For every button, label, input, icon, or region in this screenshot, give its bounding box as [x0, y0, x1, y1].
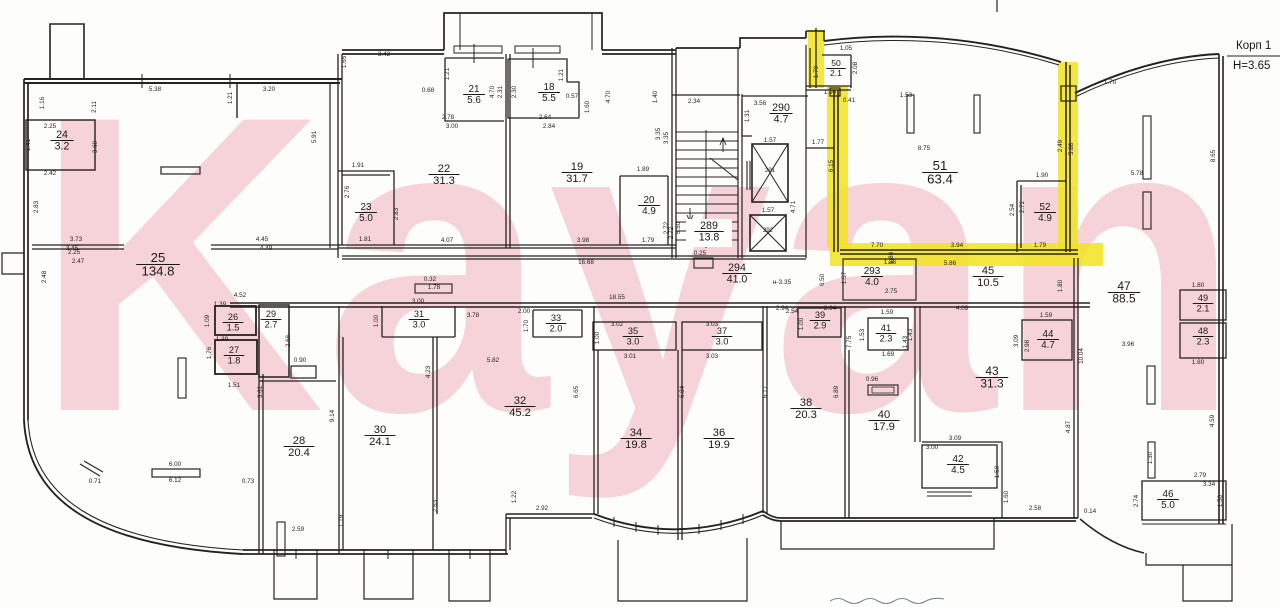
svg-text:23: 23	[361, 202, 372, 213]
svg-text:46: 46	[1163, 489, 1174, 500]
svg-text:4.07: 4.07	[441, 237, 454, 244]
svg-text:1.43: 1.43	[902, 335, 909, 348]
svg-text:2.76: 2.76	[344, 185, 351, 198]
svg-text:16.68: 16.68	[578, 259, 594, 266]
svg-text:289: 289	[700, 220, 718, 232]
svg-text:1.70: 1.70	[813, 65, 820, 78]
svg-text:0.71: 0.71	[89, 478, 102, 485]
svg-text:3.09: 3.09	[949, 435, 962, 442]
svg-text:1.51: 1.51	[228, 382, 241, 389]
svg-text:2.25: 2.25	[44, 123, 57, 130]
svg-text:2.49: 2.49	[1057, 139, 1064, 152]
svg-text:2.72: 2.72	[663, 221, 670, 234]
svg-text:88.5: 88.5	[1112, 292, 1136, 306]
svg-text:45.2: 45.2	[509, 407, 531, 419]
svg-text:41.0: 41.0	[727, 274, 748, 286]
svg-text:38: 38	[800, 397, 812, 409]
svg-text:1.77: 1.77	[812, 139, 825, 146]
svg-text:2.54: 2.54	[1009, 203, 1016, 216]
svg-text:2.58: 2.58	[1029, 505, 1042, 512]
svg-text:31.3: 31.3	[980, 377, 1004, 391]
svg-text:52: 52	[1040, 202, 1051, 213]
svg-text:1.57: 1.57	[841, 271, 848, 284]
svg-text:10.04: 10.04	[1078, 348, 1085, 364]
svg-text:н-3.35: н-3.35	[773, 279, 792, 286]
svg-text:3.09: 3.09	[1013, 334, 1020, 347]
svg-text:1.89: 1.89	[637, 166, 650, 173]
svg-text:40: 40	[878, 409, 890, 421]
svg-text:2.59: 2.59	[292, 526, 305, 533]
svg-text:30: 30	[374, 424, 386, 436]
svg-text:5.0: 5.0	[359, 213, 373, 224]
svg-text:2.75: 2.75	[885, 288, 898, 295]
svg-text:2.78: 2.78	[442, 114, 455, 121]
svg-text:5.86: 5.86	[944, 260, 957, 267]
svg-text:1.22: 1.22	[511, 490, 518, 503]
svg-text:1.60: 1.60	[584, 100, 591, 113]
svg-text:293: 293	[864, 266, 881, 277]
svg-text:3.35: 3.35	[663, 131, 670, 144]
svg-text:29: 29	[266, 309, 276, 319]
svg-text:1.79: 1.79	[642, 237, 655, 244]
svg-text:1.78: 1.78	[428, 284, 441, 291]
svg-text:2.92: 2.92	[536, 505, 549, 512]
svg-text:48: 48	[1198, 326, 1208, 336]
svg-text:33: 33	[551, 313, 561, 323]
svg-text:1.00: 1.00	[798, 317, 805, 330]
svg-text:3.60: 3.60	[92, 140, 99, 153]
svg-text:1.59: 1.59	[1040, 312, 1053, 319]
svg-text:3.78: 3.78	[467, 312, 480, 319]
svg-text:1.70: 1.70	[523, 319, 530, 332]
svg-text:1.19: 1.19	[338, 514, 345, 527]
svg-text:18.55: 18.55	[609, 294, 625, 301]
svg-text:3.00: 3.00	[446, 123, 459, 130]
svg-text:1.91: 1.91	[352, 162, 365, 169]
svg-text:294: 294	[728, 262, 746, 274]
svg-text:1.00: 1.00	[373, 314, 380, 327]
svg-text:37: 37	[717, 326, 727, 336]
svg-text:1.69: 1.69	[882, 351, 895, 358]
svg-text:3.20: 3.20	[263, 86, 276, 93]
svg-text:1.57: 1.57	[764, 137, 777, 144]
svg-text:35: 35	[628, 326, 638, 336]
svg-text:3.42: 3.42	[378, 51, 391, 58]
svg-text:4.70: 4.70	[605, 90, 612, 103]
svg-text:2.72: 2.72	[1019, 200, 1026, 213]
svg-text:44: 44	[1043, 329, 1054, 340]
svg-text:4.45: 4.45	[256, 236, 269, 243]
svg-text:2.25: 2.25	[68, 249, 81, 256]
svg-text:24: 24	[56, 129, 68, 141]
svg-text:6.65: 6.65	[573, 385, 580, 398]
svg-text:1.31: 1.31	[744, 109, 751, 122]
svg-text:2.9: 2.9	[814, 320, 827, 330]
svg-text:5.6: 5.6	[467, 95, 481, 106]
svg-text:1.40: 1.40	[652, 90, 659, 103]
svg-text:3.03: 3.03	[706, 353, 719, 360]
svg-text:0.41: 0.41	[843, 97, 856, 104]
svg-text:3.03: 3.03	[706, 321, 719, 328]
svg-text:4.70: 4.70	[489, 85, 496, 98]
svg-text:4.7: 4.7	[1041, 340, 1055, 351]
svg-text:2.63: 2.63	[432, 499, 439, 512]
svg-text:5.78: 5.78	[1131, 170, 1144, 177]
svg-text:5.50: 5.50	[675, 221, 682, 234]
svg-text:10.5: 10.5	[977, 277, 999, 289]
svg-text:2.64: 2.64	[539, 114, 552, 121]
svg-text:3.00: 3.00	[926, 444, 939, 451]
svg-text:2.66: 2.66	[285, 334, 292, 347]
svg-text:1.5: 1.5	[227, 322, 240, 332]
svg-text:0.14: 0.14	[1084, 508, 1097, 515]
svg-text:6.84: 6.84	[679, 385, 686, 398]
svg-text:2.84: 2.84	[543, 123, 556, 130]
svg-text:1.05: 1.05	[840, 45, 853, 52]
svg-text:2.31: 2.31	[497, 85, 504, 98]
svg-text:31.7: 31.7	[566, 173, 588, 185]
svg-text:1.00: 1.00	[594, 331, 601, 344]
svg-text:32: 32	[514, 395, 526, 407]
svg-text:1.90: 1.90	[1036, 172, 1049, 179]
svg-text:2.83: 2.83	[393, 207, 400, 220]
svg-text:6.89: 6.89	[833, 385, 840, 398]
svg-text:1.30: 1.30	[1147, 451, 1154, 464]
svg-text:1.79: 1.79	[1034, 242, 1047, 249]
svg-text:2.98: 2.98	[1024, 339, 1031, 352]
svg-text:134.8: 134.8	[141, 264, 174, 279]
svg-text:1.59: 1.59	[881, 309, 894, 316]
svg-text:18: 18	[544, 82, 555, 93]
svg-text:3.2: 3.2	[55, 141, 70, 153]
svg-text:Корп 1: Корп 1	[1236, 40, 1271, 52]
svg-text:2.3: 2.3	[1197, 336, 1210, 346]
svg-text:20.4: 20.4	[288, 447, 310, 459]
svg-text:1.53: 1.53	[900, 92, 913, 99]
svg-text:34: 34	[630, 427, 642, 439]
svg-text:2.48: 2.48	[41, 270, 48, 283]
svg-text:6.15: 6.15	[828, 159, 835, 172]
svg-text:1.8: 1.8	[228, 355, 241, 365]
svg-text:24.1: 24.1	[369, 436, 391, 448]
svg-text:7.75: 7.75	[846, 335, 853, 348]
svg-text:1.09: 1.09	[204, 314, 211, 327]
svg-text:9.14: 9.14	[329, 409, 336, 422]
svg-text:2.30: 2.30	[511, 85, 518, 98]
svg-text:4.5: 4.5	[951, 465, 965, 476]
svg-text:4.23: 4.23	[425, 365, 432, 378]
svg-text:26: 26	[228, 312, 238, 322]
svg-text:1.90: 1.90	[824, 89, 837, 96]
svg-text:1.57: 1.57	[762, 207, 775, 214]
svg-text:290: 290	[772, 102, 790, 114]
svg-text:7.70: 7.70	[871, 242, 884, 249]
svg-text:31.3: 31.3	[433, 175, 455, 187]
svg-text:3.56: 3.56	[754, 100, 767, 107]
svg-text:6.00: 6.00	[169, 461, 182, 468]
svg-text:Н=3.65: Н=3.65	[1233, 60, 1270, 72]
svg-text:4.09: 4.09	[956, 305, 969, 312]
svg-text:20.3: 20.3	[795, 409, 817, 421]
svg-text:3.35: 3.35	[655, 127, 662, 140]
svg-text:50: 50	[831, 58, 841, 68]
svg-text:5.38: 5.38	[149, 86, 162, 93]
svg-text:41: 41	[881, 323, 891, 333]
svg-text:3.01: 3.01	[624, 353, 637, 360]
svg-text:19: 19	[571, 161, 583, 173]
svg-text:3.98: 3.98	[577, 237, 590, 244]
svg-text:27: 27	[229, 345, 239, 355]
svg-text:4.71: 4.71	[790, 200, 797, 213]
svg-text:17.9: 17.9	[873, 421, 895, 433]
svg-text:1.60: 1.60	[1003, 490, 1010, 503]
svg-text:3.0: 3.0	[413, 319, 426, 329]
svg-text:3.94: 3.94	[951, 242, 964, 249]
svg-text:2.00: 2.00	[518, 308, 531, 315]
svg-text:19.8: 19.8	[625, 439, 647, 451]
svg-text:0.90: 0.90	[294, 357, 307, 364]
svg-text:2.0: 2.0	[550, 323, 563, 333]
svg-text:3.96: 3.96	[1122, 341, 1135, 348]
svg-text:5.82: 5.82	[487, 357, 500, 364]
svg-text:49: 49	[1198, 293, 1208, 303]
svg-text:0.25: 0.25	[694, 250, 707, 257]
svg-text:0.96: 0.96	[866, 376, 879, 383]
svg-text:0.32: 0.32	[424, 276, 437, 283]
svg-text:1.39: 1.39	[214, 301, 227, 308]
svg-text:0.68: 0.68	[422, 87, 435, 94]
svg-text:3.61: 3.61	[257, 385, 264, 398]
svg-text:8.65: 8.65	[1210, 149, 1217, 162]
svg-text:291: 291	[765, 168, 776, 174]
svg-text:28: 28	[293, 435, 305, 447]
svg-text:1.70: 1.70	[1104, 79, 1117, 86]
svg-text:1.16: 1.16	[39, 96, 46, 109]
svg-text:0.73: 0.73	[242, 478, 255, 485]
svg-text:2.7: 2.7	[265, 319, 278, 329]
svg-text:2.74: 2.74	[1133, 494, 1140, 507]
svg-text:2.94: 2.94	[776, 305, 789, 312]
svg-text:3.34: 3.34	[1203, 481, 1216, 488]
svg-text:31: 31	[414, 309, 424, 319]
svg-text:2.1: 2.1	[1197, 303, 1210, 313]
svg-text:2.3: 2.3	[880, 333, 893, 343]
svg-text:2.42: 2.42	[44, 170, 57, 177]
svg-text:2.08: 2.08	[852, 61, 859, 74]
svg-text:4.0: 4.0	[865, 277, 879, 288]
svg-text:19.9: 19.9	[708, 439, 730, 451]
svg-text:1.81: 1.81	[359, 236, 372, 243]
svg-text:3.0: 3.0	[716, 336, 729, 346]
svg-text:1.39: 1.39	[216, 336, 229, 343]
svg-text:1.53: 1.53	[859, 328, 866, 341]
svg-text:6.50: 6.50	[819, 273, 826, 286]
svg-text:45: 45	[982, 265, 994, 277]
svg-text:1.50: 1.50	[1217, 494, 1224, 507]
svg-text:21: 21	[469, 84, 480, 95]
svg-text:5.0: 5.0	[1161, 500, 1175, 511]
svg-text:36: 36	[713, 427, 725, 439]
svg-text:1.80: 1.80	[1192, 282, 1205, 289]
svg-text:1.76: 1.76	[206, 346, 213, 359]
svg-text:1.21: 1.21	[444, 67, 451, 80]
svg-text:2.11: 2.11	[91, 101, 98, 113]
svg-text:2.94: 2.94	[824, 305, 837, 312]
svg-text:1.86: 1.86	[888, 251, 895, 264]
svg-text:2.79: 2.79	[1194, 472, 1207, 479]
svg-text:5.88: 5.88	[1068, 142, 1075, 155]
svg-text:4.59: 4.59	[1209, 414, 1216, 427]
svg-text:1.80: 1.80	[1192, 359, 1205, 366]
svg-text:4.52: 4.52	[234, 292, 247, 299]
svg-text:3.02: 3.02	[611, 321, 624, 328]
svg-text:63.4: 63.4	[927, 172, 953, 187]
svg-text:2.83: 2.83	[33, 200, 40, 213]
svg-text:0.57: 0.57	[566, 93, 579, 100]
svg-text:1.21: 1.21	[227, 91, 234, 104]
svg-text:20: 20	[644, 195, 655, 206]
svg-text:42: 42	[953, 454, 964, 465]
svg-text:2.34: 2.34	[688, 98, 701, 105]
svg-text:4.87: 4.87	[1065, 420, 1072, 433]
svg-text:4.9: 4.9	[642, 206, 656, 217]
svg-text:6.17: 6.17	[762, 385, 769, 398]
svg-text:13.8: 13.8	[699, 232, 720, 244]
svg-text:1.80: 1.80	[1057, 279, 1064, 292]
svg-text:292: 292	[763, 228, 774, 234]
svg-text:5.91: 5.91	[311, 130, 318, 143]
svg-text:3.0: 3.0	[627, 336, 640, 346]
svg-text:1.41: 1.41	[25, 138, 32, 151]
svg-text:2.1: 2.1	[830, 68, 842, 78]
svg-text:22: 22	[438, 163, 450, 175]
svg-text:3.00: 3.00	[412, 298, 425, 305]
svg-text:6.12: 6.12	[169, 477, 182, 484]
svg-text:5.5: 5.5	[542, 93, 556, 104]
svg-text:1.50: 1.50	[994, 465, 1001, 478]
svg-text:1.21: 1.21	[558, 68, 565, 81]
svg-text:1.65: 1.65	[341, 55, 348, 68]
svg-text:2.47: 2.47	[72, 258, 85, 265]
svg-text:4.9: 4.9	[1038, 213, 1052, 224]
svg-text:4.49: 4.49	[260, 245, 273, 252]
svg-text:4.7: 4.7	[774, 114, 789, 126]
svg-text:3.73: 3.73	[70, 236, 83, 243]
svg-text:8.75: 8.75	[918, 145, 931, 152]
